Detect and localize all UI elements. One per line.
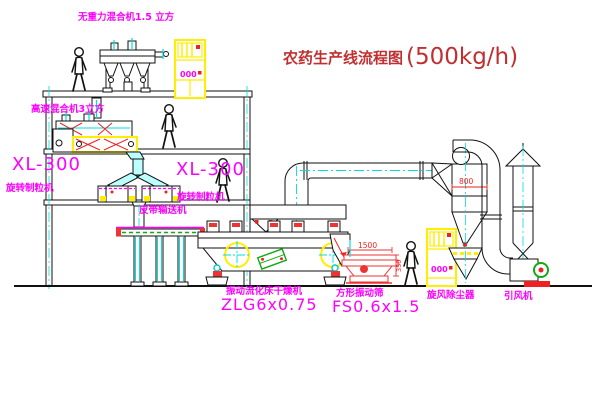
y-chute [108,152,168,189]
label-belt-conveyor: 皮带输送机 [139,206,187,216]
control-cabinet-right: 000 [427,229,456,286]
cyclone-inlet-dimension: 800 [459,177,474,186]
operator-figure-floor2 [162,105,176,148]
dryer-exhaust-duct [285,161,450,230]
label-granulator-left-model: XL-300 [12,156,81,174]
label-cyclone: 旋风除尘器 [427,291,475,301]
label-granulator-mid-model: XL-300 [176,161,245,179]
operator-figure-ground [404,242,418,285]
title-capacity: (500kg/h) [406,44,518,70]
cabinet-top-display: 000 [180,70,197,79]
label-screen-model: FS0.6x1.5 [332,299,420,315]
screen-side-dimension: 350 [395,260,403,272]
label-gravity-mixer: 无重力混合机1.5 立方 [78,13,174,23]
belt-conveyor-machine [116,228,205,287]
cabinet-right-display: 000 [431,265,448,274]
label-granulator-left-name: 旋转制粒机 [6,184,54,194]
cad-flow-diagram: 000 [0,0,600,403]
label-granulator-mid-name: 旋转制粒机 [177,193,225,203]
granulator-right-machine [142,186,180,202]
label-dryer-model: ZLG6x0.75 [221,297,318,313]
screen-length-dimension: 1500 [358,241,377,250]
label-floor2-mixer: 高速混合机3立方 [31,105,104,115]
induced-draft-fan-machine [510,259,550,287]
granulator-left-machine [98,186,136,202]
label-fan: 引风机 [504,292,533,302]
operator-figure-top-floor [72,48,86,91]
fluid-bed-dryer-machine [198,205,348,285]
drawing-title: 农药生产线流程图 (500kg/h) [283,44,518,70]
control-cabinet-top: 000 [175,40,205,98]
title-chinese: 农药生产线流程图 [283,47,403,68]
